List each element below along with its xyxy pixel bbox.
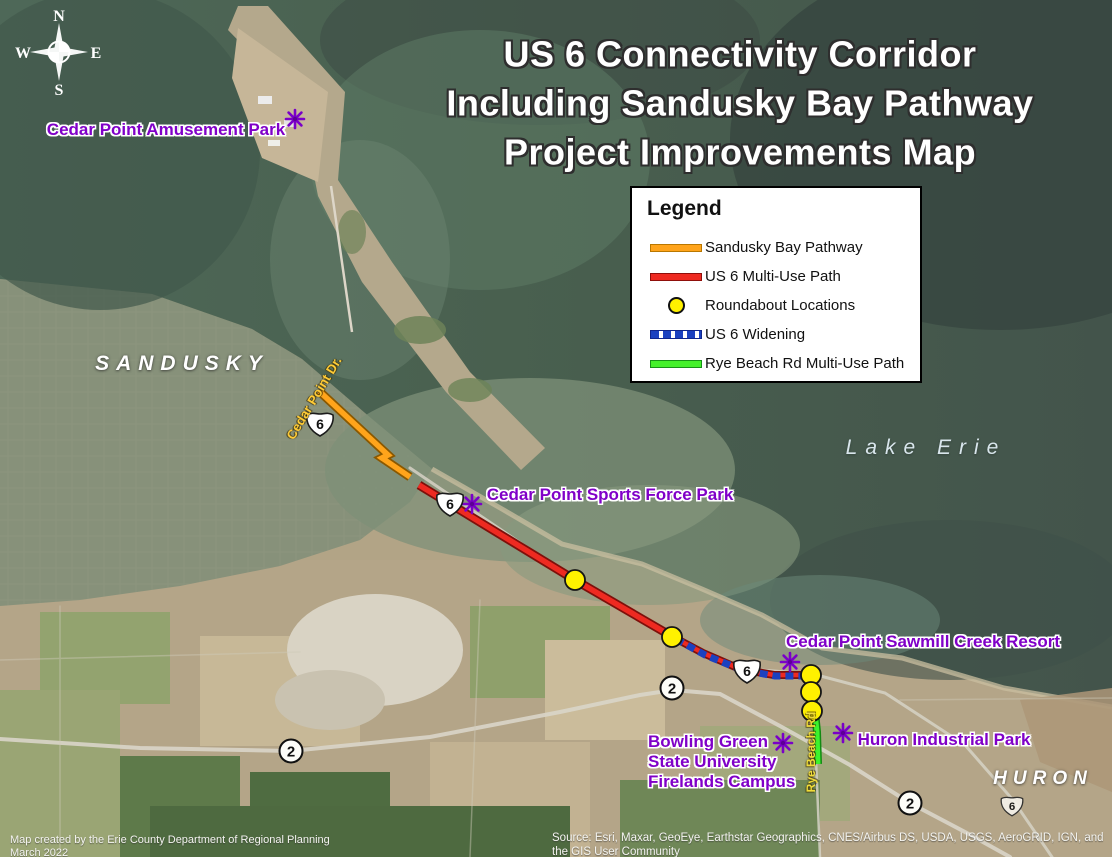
svg-text:W: W — [15, 45, 31, 62]
svg-text:6: 6 — [446, 496, 454, 512]
svg-text:N: N — [53, 8, 65, 25]
svg-text:2: 2 — [287, 744, 295, 761]
svg-text:S: S — [55, 82, 64, 99]
yellow-circle-swatch — [668, 297, 685, 314]
map-title-line1: US 6 Connectivity Corridor — [380, 30, 1100, 79]
svg-text:E: E — [91, 45, 102, 62]
label-city-sandusky: SANDUSKY — [95, 352, 269, 376]
svg-text:6: 6 — [1009, 801, 1015, 813]
sr2-shield: 2 — [280, 740, 303, 763]
map-canvas: 6 6 6 6 2 2 2 — [0, 0, 1112, 857]
legend-title: Legend — [647, 197, 920, 221]
label-cedar-point-sawmill-creek-resort: Cedar Point Sawmill Creek Resort — [786, 632, 1060, 652]
legend-panel: Legend Sandusky Bay Pathway US 6 Multi-U… — [630, 186, 922, 383]
label-rye-beach-rd: Rye Beach Rd — [804, 712, 818, 793]
green-line-swatch — [650, 360, 702, 368]
blue-dashed-line-swatch — [650, 330, 702, 339]
label-cedar-point-amusement-park: Cedar Point Amusement Park — [47, 120, 285, 140]
map-credit: Map created by the Erie County Departmen… — [10, 834, 330, 857]
svg-text:2: 2 — [906, 796, 914, 813]
svg-text:6: 6 — [743, 663, 751, 679]
svg-text:6: 6 — [316, 416, 324, 432]
sr2-shield: 2 — [661, 677, 684, 700]
svg-text:2: 2 — [668, 681, 676, 698]
map-title-line2: Including Sandusky Bay Pathway — [380, 79, 1100, 128]
legend-item-roundabout-locations: Roundabout Locations — [647, 291, 920, 320]
label-lake-erie: Lake Erie — [846, 436, 1007, 460]
orange-line-swatch — [650, 244, 702, 252]
legend-item-us6-widening: US 6 Widening — [647, 320, 920, 349]
legend-item-rye-beach-rd-path: Rye Beach Rd Multi-Use Path — [647, 349, 920, 378]
label-huron-industrial-park: Huron Industrial Park — [858, 730, 1031, 750]
sr2-shield: 2 — [899, 792, 922, 815]
map-title: US 6 Connectivity Corridor Including San… — [380, 30, 1100, 177]
legend-item-sandusky-bay-pathway: Sandusky Bay Pathway — [647, 233, 920, 262]
label-city-huron: HURON — [993, 768, 1093, 790]
label-cedar-point-sports-force-park: Cedar Point Sports Force Park — [487, 485, 734, 505]
red-line-swatch — [650, 273, 702, 281]
map-title-line3: Project Improvements Map — [380, 128, 1100, 177]
label-bgsu-firelands-campus: Bowling Green State University Firelands… — [648, 732, 795, 792]
legend-item-us6-multi-use-path: US 6 Multi-Use Path — [647, 262, 920, 291]
imagery-source-attribution: Source: Esri, Maxar, GeoEye, Earthstar G… — [552, 831, 1112, 857]
